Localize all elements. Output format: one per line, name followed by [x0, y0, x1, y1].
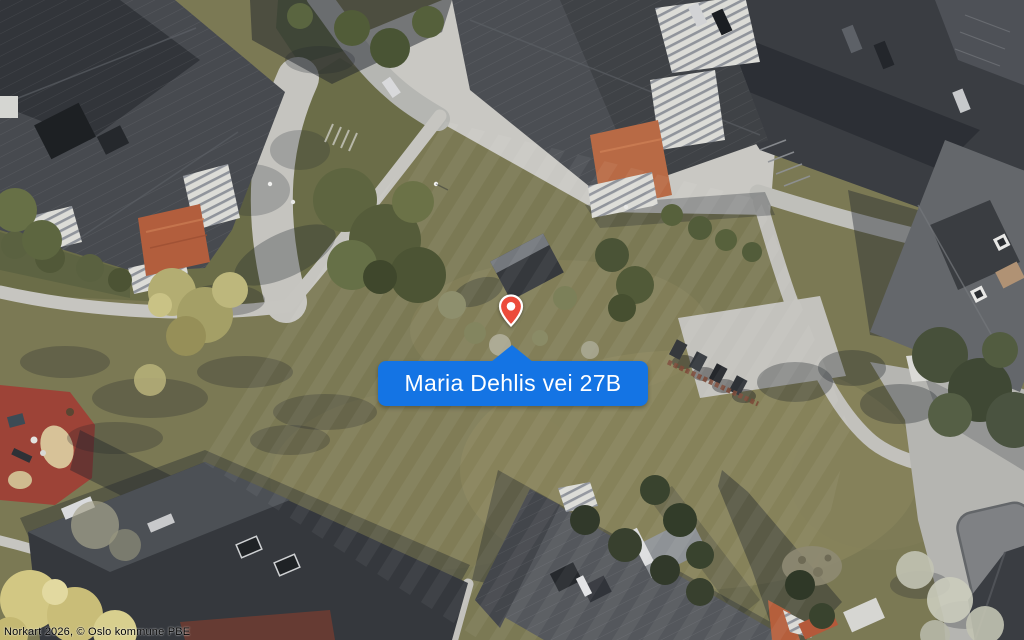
callout-label: Maria Dehlis vei 27B	[405, 370, 622, 397]
map-attribution: Norkart 2026, © Oslo kommune PBE	[4, 626, 190, 638]
pin-dot	[507, 302, 516, 311]
map-canvas[interactable]: Maria Dehlis vei 27B Norkart 2026, © Osl…	[0, 0, 1024, 640]
attribution-text: Norkart 2026, © Oslo kommune PBE	[4, 626, 190, 638]
callout-pointer	[491, 345, 533, 362]
address-callout[interactable]: Maria Dehlis vei 27B	[378, 361, 648, 406]
map-pin-icon[interactable]	[498, 294, 524, 327]
